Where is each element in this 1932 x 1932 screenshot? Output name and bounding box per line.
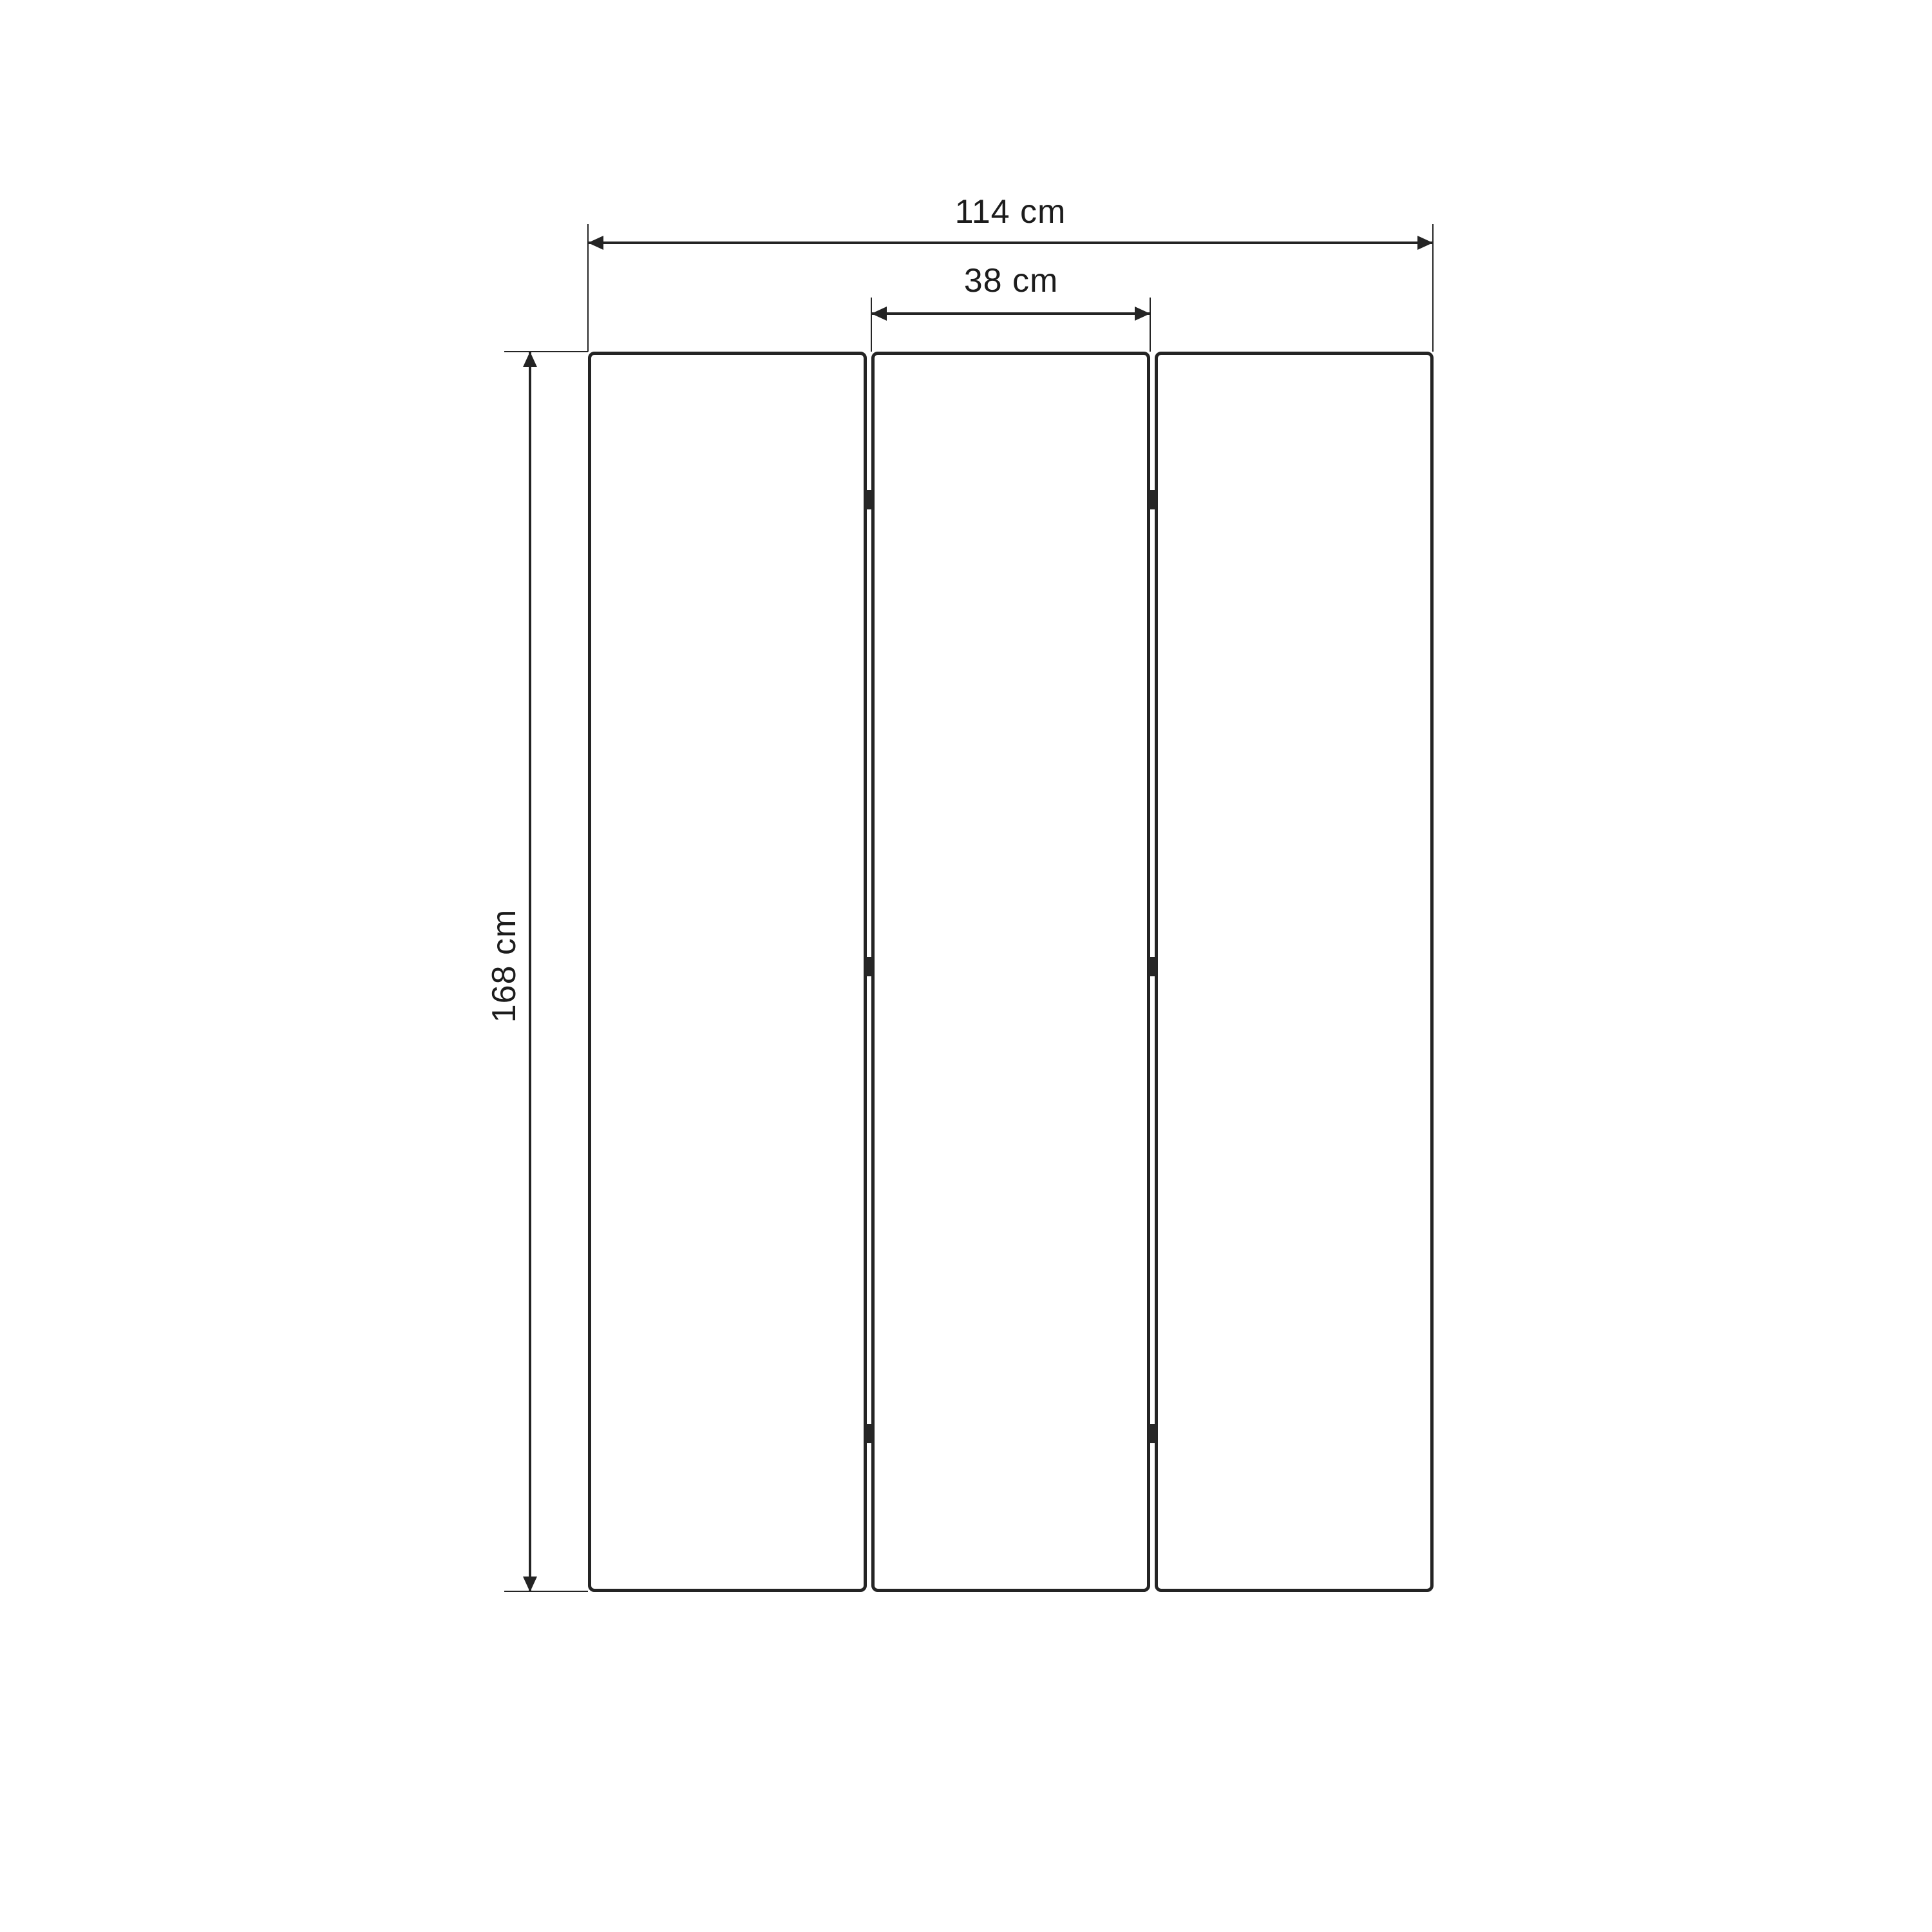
- panel-3: [1155, 352, 1434, 1592]
- dimension-line-panel-width: [871, 312, 1150, 315]
- arrow-up-icon: [523, 352, 537, 367]
- panel-1: [588, 352, 867, 1592]
- arrow-left-icon: [871, 307, 887, 321]
- extension-line-panel-width-right: [1150, 298, 1151, 352]
- height-dimension-label: 168 cm: [485, 909, 524, 1023]
- hinge-mark: [866, 490, 873, 509]
- arrow-down-icon: [523, 1577, 537, 1592]
- arrow-left-icon: [588, 236, 603, 250]
- technical-drawing-canvas: 114 cm 38 cm 168 cm: [0, 0, 1932, 1932]
- total-width-dimension-label: 114 cm: [955, 193, 1066, 231]
- dimension-line-total-width: [588, 241, 1433, 244]
- arrow-right-icon: [1135, 307, 1150, 321]
- hinge-mark: [1149, 490, 1157, 509]
- hinge-mark: [866, 1424, 873, 1443]
- hinge-mark: [1149, 957, 1157, 976]
- hinge-mark: [866, 957, 873, 976]
- arrow-right-icon: [1417, 236, 1433, 250]
- panel-2: [871, 352, 1150, 1592]
- dimension-line-height: [529, 352, 531, 1592]
- extension-line-panel-width-left: [871, 298, 872, 352]
- hinge-mark: [1149, 1424, 1157, 1443]
- panel-width-dimension-label: 38 cm: [964, 261, 1059, 300]
- extension-line-height-bottom: [504, 1591, 588, 1592]
- extension-line-height-top: [504, 351, 588, 352]
